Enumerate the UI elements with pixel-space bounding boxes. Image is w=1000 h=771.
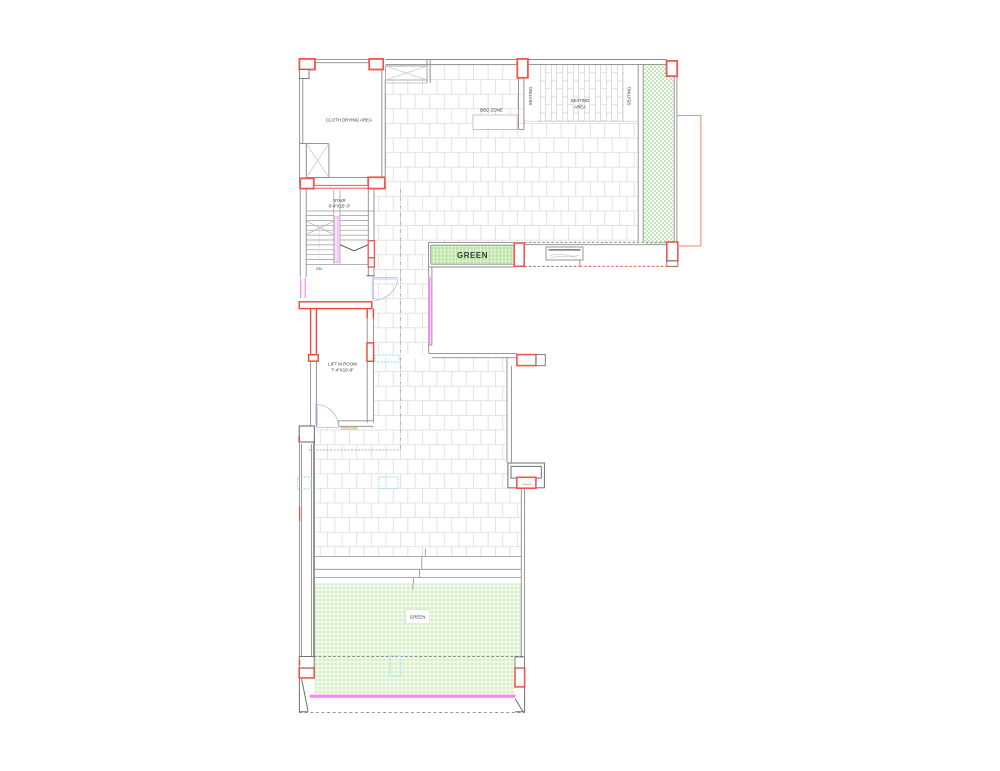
- svg-text:GREEN: GREEN: [457, 251, 488, 260]
- svg-text:7'-4"X10'-8": 7'-4"X10'-8": [331, 367, 354, 372]
- svg-text:SEATING: SEATING: [627, 86, 632, 106]
- svg-text:GREEN: GREEN: [410, 615, 426, 620]
- svg-text:AREA: AREA: [574, 104, 586, 109]
- svg-text:SEATING: SEATING: [571, 98, 591, 103]
- svg-text:DN: DN: [316, 266, 322, 271]
- svg-text:BBQ ZONE: BBQ ZONE: [480, 108, 503, 113]
- svg-text:6'-4"X15'-0": 6'-4"X15'-0": [329, 203, 351, 208]
- svg-text:SEATING: SEATING: [528, 86, 533, 106]
- svg-text:LIFT M.ROOM: LIFT M.ROOM: [328, 362, 357, 367]
- svg-text:STAIR: STAIR: [333, 198, 345, 203]
- svg-text:CLOTH DRYING AREA: CLOTH DRYING AREA: [326, 118, 372, 123]
